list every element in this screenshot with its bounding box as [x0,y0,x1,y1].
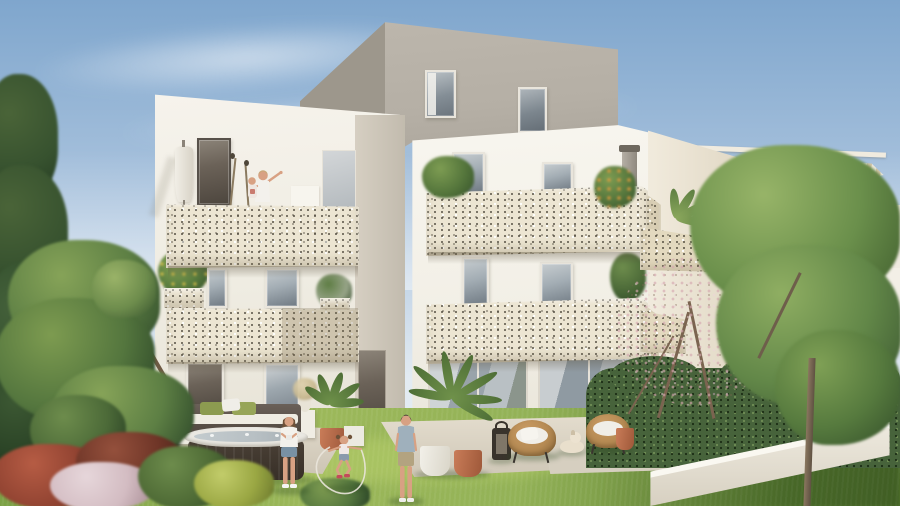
balcony-parapet [426,298,648,364]
terracotta-pot [454,450,482,477]
stem-seed-head [230,153,235,159]
white-pot [420,446,450,476]
architectural-render [0,0,900,506]
attic-window [518,87,547,133]
woman-on-lawn [272,414,306,494]
left-tree-canopy [92,260,156,318]
hot-tub-jet [210,434,214,437]
balcony-soffit-shadow [428,252,646,264]
stem-seed-head [244,160,249,166]
parasol-finial [182,140,185,147]
balcony-soffit-shadow [168,266,358,278]
shrub-yellow [194,460,274,506]
lantern-handle [495,421,508,431]
hot-tub-jet [245,433,249,436]
lantern-glass [496,434,507,454]
terrace-slider-window [322,150,356,209]
chimney-cap [619,145,640,152]
chair-pillow [520,427,539,441]
balcony-people [238,168,284,210]
terracotta-pot [616,428,634,450]
attic-window-curtain [428,73,436,115]
window [462,257,489,307]
closed-parasol [175,146,193,202]
man-on-lawn [392,412,420,504]
terrace-window [197,138,231,206]
dog-ear [571,430,575,435]
parapet-shade-overlay [282,308,358,362]
planter-box [164,288,204,308]
balcony-soffit-shadow [168,362,358,373]
right-tree-canopy [775,330,900,445]
sofa-cushion [200,402,224,415]
sofa-pillow [221,398,240,412]
roof-access-box [291,186,319,206]
balcony-parapet [166,202,359,268]
window [542,162,573,193]
citrus-tree [594,166,636,208]
child-jumping-rope [322,432,366,490]
balcony-bush [422,156,474,198]
